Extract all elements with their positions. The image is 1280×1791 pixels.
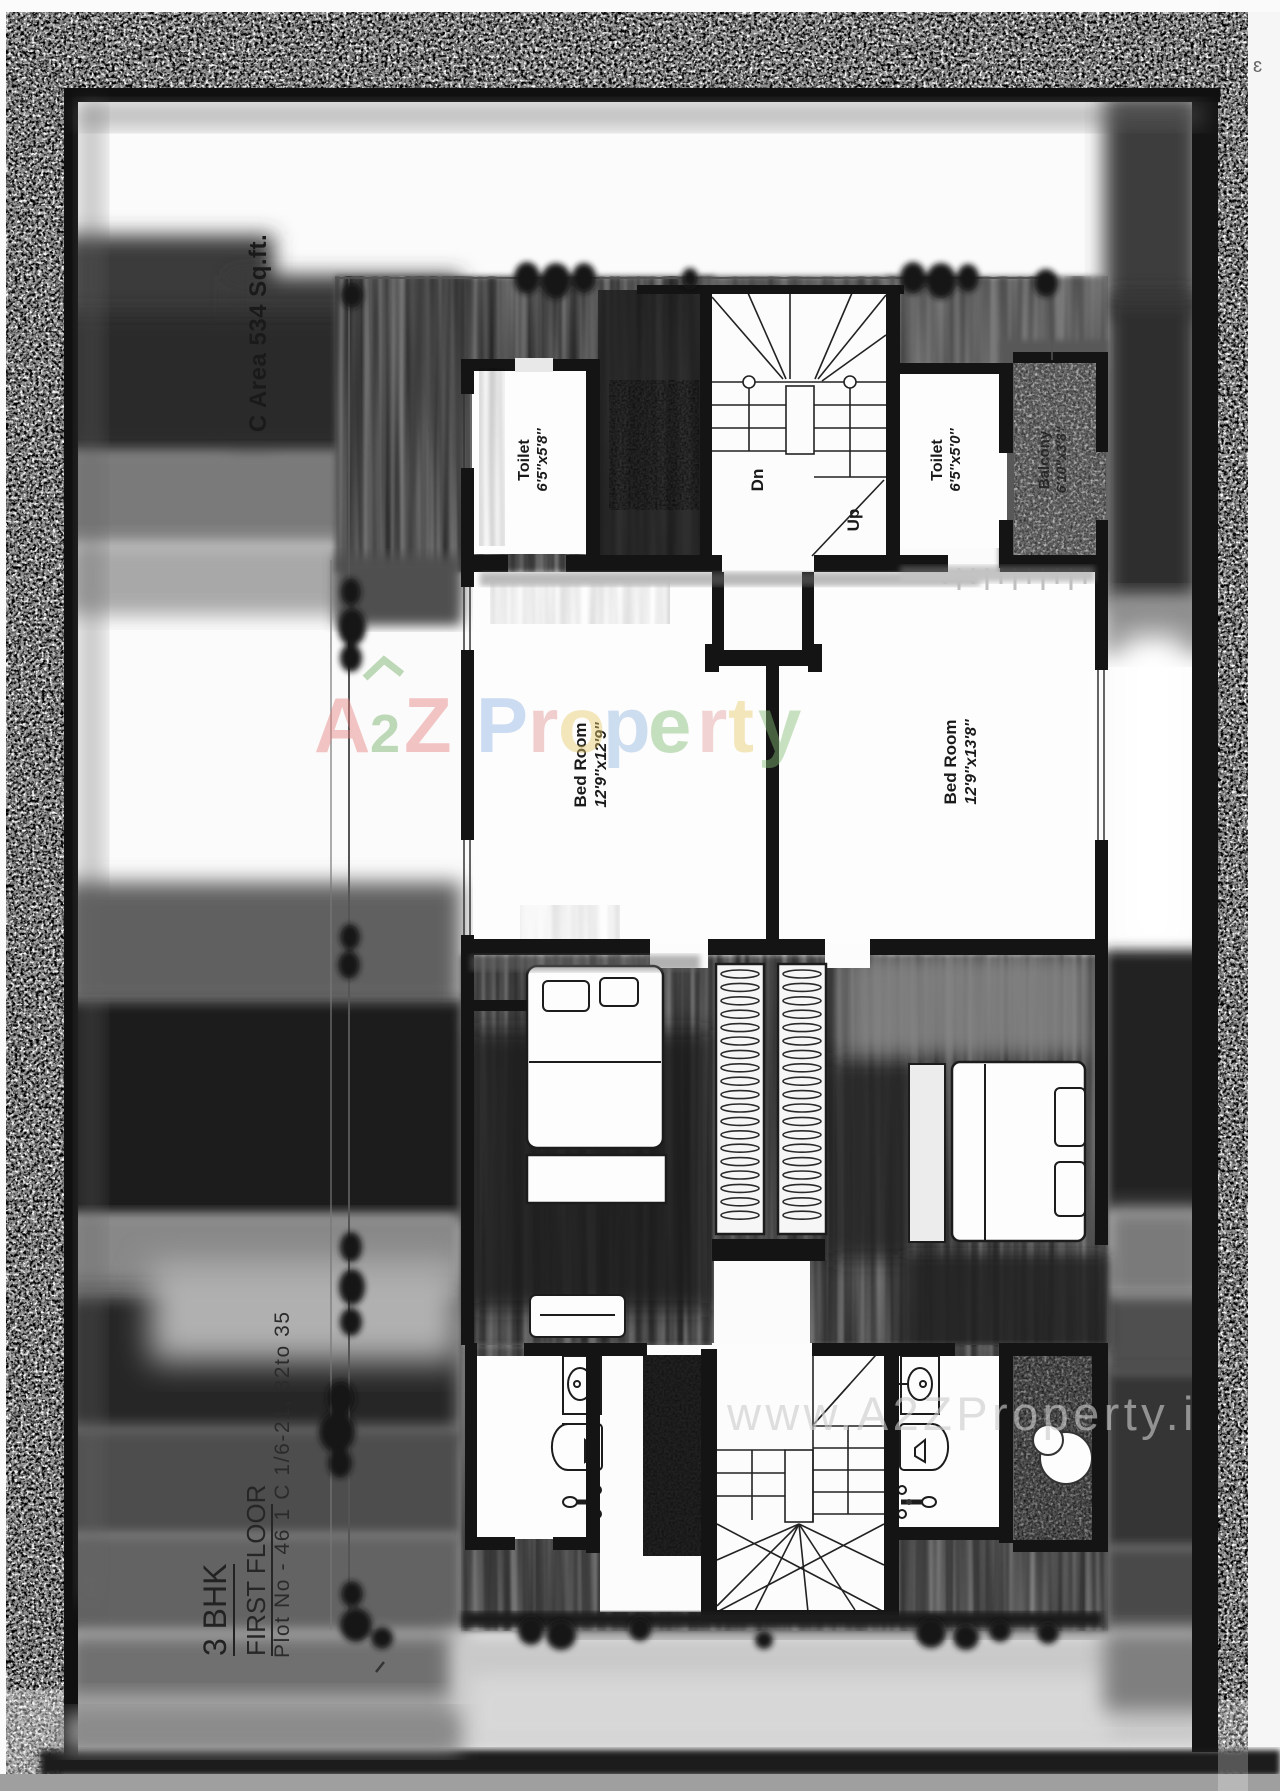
svg-text:12'9''x13'8'': 12'9''x13'8''	[963, 718, 980, 804]
svg-text:r: r	[528, 681, 558, 769]
svg-text:e: e	[648, 681, 691, 769]
svg-text:Toilet: Toilet	[929, 439, 946, 481]
svg-text:P: P	[476, 681, 528, 769]
svg-text:ɛ: ɛ	[1253, 55, 1262, 77]
svg-text:p: p	[603, 681, 651, 769]
svg-text:y: y	[758, 681, 801, 769]
svg-text:Up: Up	[844, 509, 863, 532]
svg-text:Z: Z	[404, 681, 452, 769]
svg-text:Bed Room: Bed Room	[941, 720, 960, 805]
svg-text:Dn: Dn	[748, 469, 767, 492]
svg-text:FIRST FLOOR: FIRST FLOOR	[241, 1485, 271, 1656]
svg-text:6'5''x5'8'': 6'5''x5'8''	[534, 428, 551, 492]
svg-text:6'10''x3'8'': 6'10''x3'8''	[1053, 426, 1069, 493]
svg-text:Toilet: Toilet	[516, 439, 533, 481]
svg-text:Plot No - 46 1 C 1/6-21, 32: Plot No - 46 1 C 1/6-21, 32to 35	[271, 1310, 294, 1658]
svg-text:2: 2	[370, 704, 400, 764]
svg-text:o: o	[558, 681, 606, 769]
svg-text:r: r	[697, 681, 727, 769]
svg-text:6'5''x5'0'': 6'5''x5'0''	[947, 428, 964, 492]
svg-text:t: t	[728, 681, 754, 769]
svg-text:Balcony: Balcony	[1036, 430, 1053, 489]
svg-text:C Area 534 Sq.ft.: C Area 534 Sq.ft.	[245, 234, 272, 432]
svg-text:3 BHK: 3 BHK	[197, 1564, 233, 1656]
svg-text:A: A	[314, 681, 370, 769]
